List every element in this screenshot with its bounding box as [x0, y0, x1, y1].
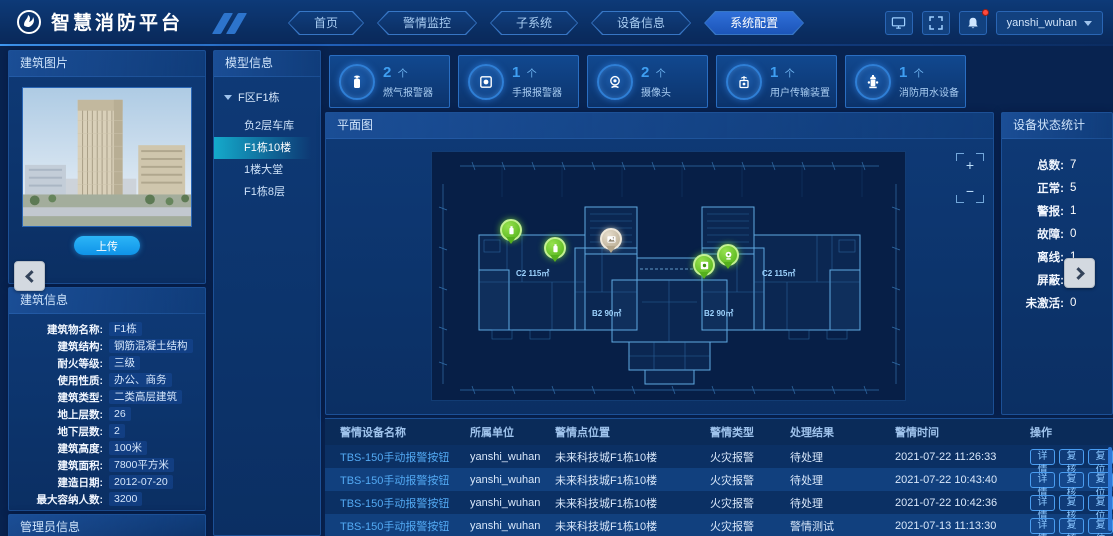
- stat-count: 2: [383, 64, 391, 81]
- stat-unit: 个: [785, 69, 795, 80]
- status-value: 0: [1070, 297, 1076, 309]
- device-marker[interactable]: [600, 228, 622, 250]
- col-header: 警情点位置: [555, 424, 710, 440]
- stat-label: 手报报警器: [512, 84, 562, 99]
- stat-count: 1: [512, 64, 520, 81]
- nav-tab[interactable]: 子系统: [490, 11, 578, 35]
- building-info-row: 建造日期: 2012-07-20: [9, 475, 201, 489]
- nav-tab[interactable]: 系统配置: [704, 11, 804, 35]
- status-label: 总数:: [1002, 157, 1064, 173]
- gas-alarm-icon: [506, 225, 517, 236]
- chevron-down-icon: [224, 95, 232, 100]
- col-header: 警情类型: [710, 424, 790, 440]
- building-info-row: 地下层数: 2: [9, 424, 201, 438]
- field-value: F1栋: [109, 322, 142, 336]
- cell-unit: yanshi_wuhan: [470, 497, 555, 509]
- gas-alarm-icon: [550, 243, 561, 254]
- header-slash-decoration: [218, 13, 241, 34]
- field-label: 耐火等级:: [9, 356, 103, 371]
- review-button[interactable]: 复核: [1059, 518, 1084, 534]
- building-photo: [22, 87, 192, 227]
- cell-device-name[interactable]: TBS-150手动报警按钮: [340, 472, 470, 488]
- field-label: 建筑类型:: [9, 390, 103, 405]
- brand: 智慧消防平台: [16, 8, 183, 35]
- cell-actions: 详情 复核 复位: [1030, 495, 1113, 511]
- tree-root-node[interactable]: F区F1栋: [214, 89, 320, 115]
- chevron-right-icon: [1072, 267, 1085, 280]
- status-row: 屏蔽: 0: [1002, 270, 1112, 289]
- status-row: 总数: 7: [1002, 155, 1112, 174]
- device-status-panel: 设备状态统计 总数: 7 正常: 5 警报: 1 故障: 0 离线: 1: [1001, 112, 1113, 415]
- field-label: 建造日期:: [9, 475, 103, 490]
- fullscreen-button[interactable]: [922, 11, 950, 35]
- nav-tab[interactable]: 首页: [288, 11, 364, 35]
- status-value: 5: [1070, 182, 1076, 194]
- stat-card[interactable]: 1 个 用户传输装置: [716, 55, 837, 108]
- cell-actions: 详情 复核 复位: [1030, 472, 1113, 488]
- cell-location: 未来科技城F1栋10楼: [555, 449, 710, 465]
- building-info-row: 建筑物名称: F1栋: [9, 322, 201, 336]
- building-info-row: 耐火等级: 三级: [9, 356, 201, 370]
- gas-alarm-icon: [349, 74, 365, 90]
- col-header: 所属单位: [470, 424, 555, 440]
- notification-badge: [982, 9, 989, 16]
- field-value: 2012-07-20: [109, 475, 173, 489]
- col-header: 操作: [1030, 424, 1113, 440]
- cell-time: 2021-07-22 10:43:40: [895, 474, 1030, 486]
- field-label: 建筑高度:: [9, 441, 103, 456]
- chevron-down-icon: [1084, 21, 1092, 26]
- building-info-row: 建筑面积: 7800平方米: [9, 458, 201, 472]
- image-icon: [606, 234, 617, 245]
- field-value: 100米: [109, 441, 147, 455]
- status-row: 故障: 0: [1002, 224, 1112, 243]
- hydrant-icon: [865, 74, 881, 90]
- stat-unit: 个: [398, 69, 408, 80]
- floor-plan-drawing: C2 115㎡ B2 90㎡ B2 90㎡ C2 115㎡: [432, 152, 907, 402]
- status-label: 正常:: [1002, 180, 1064, 196]
- building-info-row: 建筑高度: 100米: [9, 441, 201, 455]
- field-value: 7800平方米: [109, 458, 174, 472]
- device-status-title: 设备状态统计: [1002, 113, 1112, 139]
- field-label: 建筑面积:: [9, 458, 103, 473]
- table-scrollbar[interactable]: [1108, 447, 1112, 531]
- nav-tab-label: 系统配置: [730, 16, 778, 30]
- floor-plan-title: 平面图: [326, 113, 993, 139]
- zoom-in-button[interactable]: +: [956, 155, 984, 175]
- chevron-left-icon: [25, 270, 38, 283]
- status-value: 1: [1070, 205, 1076, 217]
- tree-node[interactable]: 负2层车库: [214, 115, 320, 137]
- cell-time: 2021-07-22 10:42:36: [895, 497, 1030, 509]
- floor-plan-panel: 平面图: [325, 112, 994, 415]
- field-value: 二类高层建筑: [109, 390, 182, 404]
- table-row[interactable]: TBS-150手动报警按钮 yanshi_wuhan 未来科技城F1栋10楼 火…: [325, 491, 1113, 514]
- admin-info-panel: 管理员信息: [8, 514, 206, 536]
- status-label: 警报:: [1002, 203, 1064, 219]
- alarm-table-header: 警情设备名称 所属单位 警情点位置 警情类型 处理结果 警情时间 操作: [325, 419, 1113, 445]
- camera-icon: [607, 74, 623, 90]
- unit-label: C2 115㎡: [762, 268, 795, 278]
- stat-card-icon-ring: [597, 64, 633, 100]
- unit-label: B2 90㎡: [704, 308, 733, 318]
- field-label: 地下层数:: [9, 424, 103, 439]
- device-marker[interactable]: [717, 244, 739, 266]
- cell-alarm-type: 火灾报警: [710, 518, 790, 534]
- building-photo-image: [23, 88, 191, 226]
- status-row: 未激活: 0: [1002, 293, 1112, 312]
- detail-button[interactable]: 详情: [1030, 472, 1055, 488]
- status-row: 离线: 1: [1002, 247, 1112, 266]
- field-label: 地上层数:: [9, 407, 103, 422]
- building-info-row: 建筑结构: 钢筋混凝土结构: [9, 339, 201, 353]
- cell-location: 未来科技城F1栋10楼: [555, 495, 710, 511]
- stat-card-text: 1 个 消防用水设备: [899, 64, 959, 99]
- plan-zoom-control: + −: [956, 153, 984, 203]
- header-controls: yanshi_wuhan: [885, 11, 1103, 35]
- tree-node[interactable]: F1栋8层: [214, 181, 320, 203]
- building-info-row: 地上层数: 26: [9, 407, 201, 421]
- review-button[interactable]: 复核: [1059, 449, 1084, 465]
- cell-time: 2021-07-22 11:26:33: [895, 451, 1030, 463]
- logo-icon: [16, 9, 42, 35]
- stat-count: 2: [641, 64, 649, 81]
- user-name: yanshi_wuhan: [1007, 17, 1077, 29]
- detail-button[interactable]: 详情: [1030, 518, 1055, 534]
- bell-icon: [966, 16, 980, 30]
- table-row[interactable]: TBS-150手动报警按钮 yanshi_wuhan 未来科技城F1栋10楼 火…: [325, 445, 1113, 468]
- app-title: 智慧消防平台: [51, 8, 183, 35]
- building-info-title: 建筑信息: [9, 288, 205, 314]
- field-label: 建筑物名称:: [9, 322, 103, 337]
- stat-card-text: 1 个 用户传输装置: [770, 64, 830, 99]
- stat-card[interactable]: 2 个 摄像头: [587, 55, 708, 108]
- cell-unit: yanshi_wuhan: [470, 474, 555, 486]
- status-label: 离线:: [1002, 249, 1064, 265]
- table-row[interactable]: TBS-150手动报警按钮 yanshi_wuhan 未来科技城F1栋10楼 火…: [325, 514, 1113, 536]
- stat-unit: 个: [527, 69, 537, 80]
- stat-card[interactable]: 1 个 消防用水设备: [845, 55, 966, 108]
- stat-count: 1: [770, 64, 778, 81]
- building-info-panel: 建筑信息 建筑物名称: F1栋 建筑结构: 钢筋混凝土结构 耐火等级: 三级 使…: [8, 287, 206, 511]
- field-label: 使用性质:: [9, 373, 103, 388]
- review-button[interactable]: 复核: [1059, 472, 1084, 488]
- camera-icon: [723, 250, 734, 261]
- field-value: 3200: [109, 492, 142, 506]
- stat-card-text: 2 个 燃气报警器: [383, 64, 433, 99]
- stat-card-icon-ring: [339, 64, 375, 100]
- stat-label: 消防用水设备: [899, 84, 959, 99]
- stat-label: 摄像头: [641, 84, 671, 99]
- cell-alarm-type: 火灾报警: [710, 495, 790, 511]
- tree-node[interactable]: F1栋10楼: [214, 137, 320, 159]
- col-header: 警情设备名称: [340, 424, 470, 440]
- screen-button[interactable]: [885, 11, 913, 35]
- cell-alarm-type: 火灾报警: [710, 472, 790, 488]
- field-value: 26: [109, 407, 131, 421]
- cell-alarm-type: 火灾报警: [710, 449, 790, 465]
- nav-tab-label: 设备信息: [617, 16, 665, 30]
- smart-fire-platform: 智慧消防平台 首页 警情监控 子系统 设备信息: [0, 0, 1113, 536]
- stat-card[interactable]: 1 个 手报报警器: [458, 55, 579, 108]
- status-label: 未激活:: [1002, 295, 1064, 311]
- stat-unit: 个: [914, 69, 924, 80]
- status-row: 正常: 5: [1002, 178, 1112, 197]
- status-label: 故障:: [1002, 226, 1064, 242]
- field-label: 建筑结构:: [9, 339, 103, 354]
- admin-info-title: 管理员信息: [9, 515, 205, 536]
- unit-label: C2 115㎡: [516, 268, 549, 278]
- next-building-button[interactable]: [1064, 258, 1095, 288]
- building-info-row: 最大容纳人数: 3200: [9, 492, 201, 506]
- field-value: 办公、商务: [109, 373, 172, 387]
- tree-root-label: F区F1栋: [238, 89, 280, 105]
- building-info-list: 建筑物名称: F1栋 建筑结构: 钢筋混凝土结构 耐火等级: 三级 使用性质: …: [9, 314, 205, 506]
- nav-tab[interactable]: 警情监控: [377, 11, 477, 35]
- floor-plan-canvas[interactable]: C2 115㎡ B2 90㎡ B2 90㎡ C2 115㎡: [431, 151, 906, 401]
- nav-tab-label: 警情监控: [403, 16, 451, 30]
- status-row: 警报: 1: [1002, 201, 1112, 220]
- stat-card-text: 1 个 手报报警器: [512, 64, 562, 99]
- device-status-list: 总数: 7 正常: 5 警报: 1 故障: 0 离线: 1 屏蔽: 0: [1002, 139, 1112, 312]
- model-info-title: 模型信息: [214, 51, 320, 77]
- status-value: 0: [1070, 228, 1076, 240]
- transmission-device-icon: [736, 74, 752, 90]
- stat-card-text: 2 个 摄像头: [641, 64, 671, 99]
- manual-alarm-icon: [478, 74, 494, 90]
- review-button[interactable]: 复核: [1059, 495, 1084, 511]
- zoom-out-button[interactable]: −: [956, 181, 984, 201]
- cell-device-name[interactable]: TBS-150手动报警按钮: [340, 495, 470, 511]
- cell-actions: 详情 复核 复位: [1030, 449, 1113, 465]
- building-info-row: 使用性质: 办公、商务: [9, 373, 201, 387]
- model-info-panel: 模型信息 F区F1栋 负2层车库F1栋10楼1楼大堂F1栋8层: [213, 50, 321, 536]
- cell-unit: yanshi_wuhan: [470, 520, 555, 532]
- stat-card[interactable]: 2 个 燃气报警器: [329, 55, 450, 108]
- col-header: 处理结果: [790, 424, 895, 440]
- stat-unit: 个: [656, 69, 666, 80]
- stat-label: 燃气报警器: [383, 84, 433, 99]
- top-bar: 智慧消防平台 首页 警情监控 子系统 设备信息: [0, 0, 1113, 46]
- device-stat-cards: 2 个 燃气报警器: [329, 55, 966, 108]
- building-photo-panel: 建筑图片: [8, 50, 206, 284]
- stat-card-icon-ring: [468, 64, 504, 100]
- cell-result: 待处理: [790, 495, 895, 511]
- table-row[interactable]: TBS-150手动报警按钮 yanshi_wuhan 未来科技城F1栋10楼 火…: [325, 468, 1113, 491]
- building-photo-title: 建筑图片: [9, 51, 205, 77]
- user-menu[interactable]: yanshi_wuhan: [996, 11, 1103, 35]
- cell-location: 未来科技城F1栋10楼: [555, 472, 710, 488]
- cell-actions: 详情 复核 复位: [1030, 518, 1113, 534]
- cell-device-name[interactable]: TBS-150手动报警按钮: [340, 449, 470, 465]
- cell-result: 待处理: [790, 472, 895, 488]
- device-marker[interactable]: [500, 219, 522, 241]
- nav-tab-label: 子系统: [516, 16, 552, 30]
- stat-count: 1: [899, 64, 907, 81]
- building-info-row: 建筑类型: 二类高层建筑: [9, 390, 201, 404]
- cell-result: 警情测试: [790, 518, 895, 534]
- col-header: 警情时间: [895, 424, 1030, 440]
- main-nav: 首页 警情监控 子系统 设备信息 系统配置: [288, 11, 804, 35]
- stat-label: 用户传输装置: [770, 84, 830, 99]
- fullscreen-icon: [929, 16, 943, 30]
- field-label: 最大容纳人数:: [9, 492, 103, 507]
- cell-unit: yanshi_wuhan: [470, 451, 555, 463]
- cell-time: 2021-07-13 11:13:30: [895, 520, 1030, 532]
- upload-button[interactable]: 上传: [74, 236, 140, 255]
- cell-device-name[interactable]: TBS-150手动报警按钮: [340, 518, 470, 534]
- detail-button[interactable]: 详情: [1030, 449, 1055, 465]
- cell-location: 未来科技城F1栋10楼: [555, 518, 710, 534]
- manual-alarm-icon: [699, 260, 710, 271]
- prev-building-button[interactable]: [14, 261, 45, 291]
- detail-button[interactable]: 详情: [1030, 495, 1055, 511]
- tree-children: 负2层车库F1栋10楼1楼大堂F1栋8层: [214, 115, 320, 203]
- model-tree: F区F1栋 负2层车库F1栋10楼1楼大堂F1栋8层: [214, 77, 320, 203]
- cell-result: 待处理: [790, 449, 895, 465]
- field-value: 三级: [109, 356, 140, 370]
- stat-card-icon-ring: [726, 64, 762, 100]
- device-marker[interactable]: [544, 237, 566, 259]
- nav-tab[interactable]: 设备信息: [591, 11, 691, 35]
- status-label: 屏蔽:: [1002, 272, 1064, 288]
- device-marker[interactable]: [693, 254, 715, 276]
- notifications-button[interactable]: [959, 11, 987, 35]
- field-value: 2: [109, 424, 125, 438]
- status-value: 7: [1070, 159, 1076, 171]
- unit-label: B2 90㎡: [592, 308, 621, 318]
- monitor-icon: [891, 16, 906, 30]
- field-value: 钢筋混凝土结构: [109, 339, 193, 353]
- tree-node[interactable]: 1楼大堂: [214, 159, 320, 181]
- nav-tab-label: 首页: [314, 16, 338, 30]
- alarm-table-body: TBS-150手动报警按钮 yanshi_wuhan 未来科技城F1栋10楼 火…: [325, 445, 1113, 536]
- stat-card-icon-ring: [855, 64, 891, 100]
- alarm-table: 警情设备名称 所属单位 警情点位置 警情类型 处理结果 警情时间 操作 TBS-…: [325, 418, 1113, 536]
